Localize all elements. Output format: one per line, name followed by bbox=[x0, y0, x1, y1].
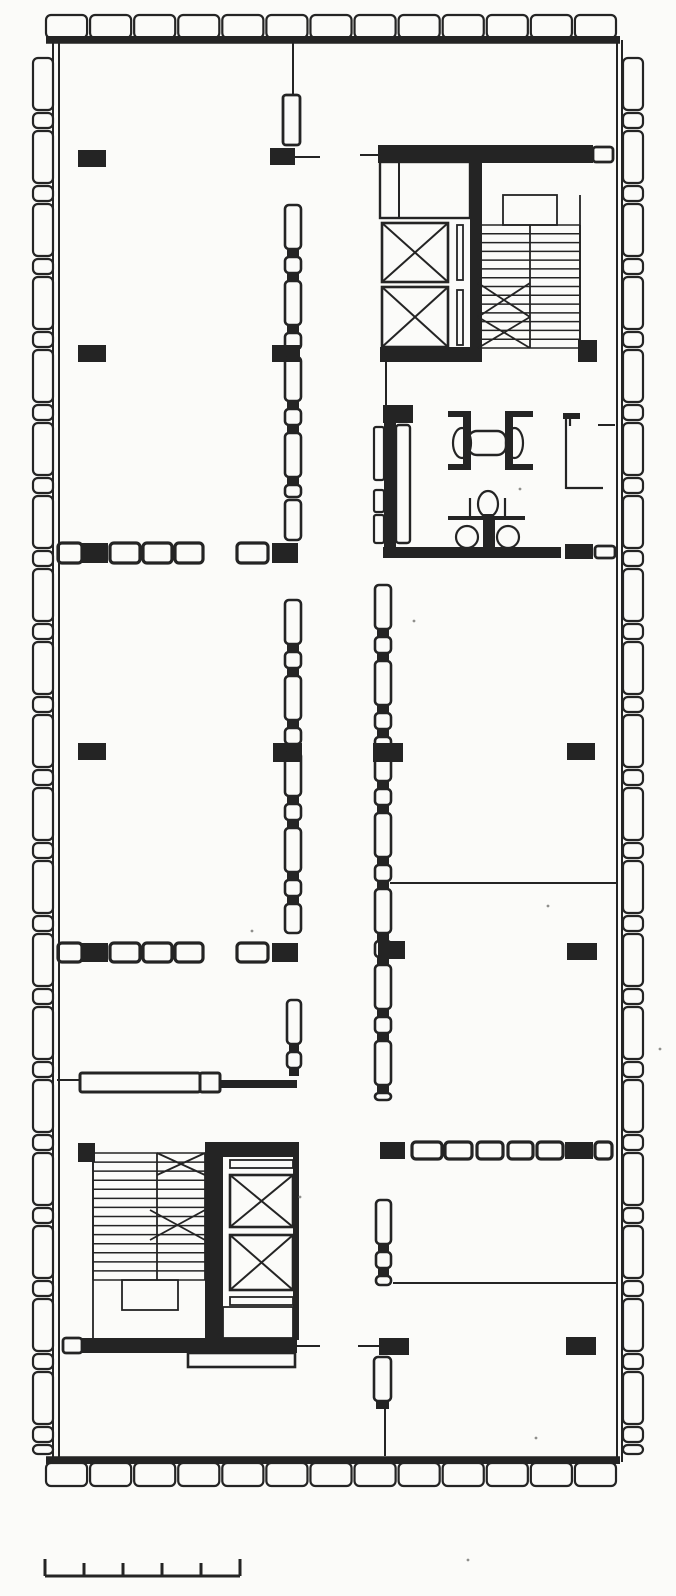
wall-block bbox=[82, 943, 108, 962]
restroom-south-wall bbox=[383, 547, 561, 558]
scan-speck bbox=[659, 1048, 662, 1051]
janitor-room-wall-cap bbox=[563, 413, 580, 419]
core-bottom-wall bbox=[82, 1338, 297, 1353]
scan-speck bbox=[547, 905, 550, 908]
core-top-wall bbox=[378, 145, 593, 163]
column bbox=[383, 405, 413, 423]
scan-speck bbox=[251, 930, 254, 933]
wall-block bbox=[272, 543, 298, 563]
column bbox=[566, 1337, 596, 1355]
column bbox=[78, 150, 106, 167]
column bbox=[270, 148, 295, 165]
wall-block bbox=[82, 543, 108, 563]
tower-west-wall bbox=[205, 1142, 223, 1340]
core-bottom-wall bbox=[380, 347, 478, 362]
core-shear-wall bbox=[470, 163, 482, 362]
column bbox=[567, 743, 595, 760]
floor-plan-drawing bbox=[0, 0, 676, 1596]
restroom-south-wall-block bbox=[565, 544, 593, 559]
wall-block bbox=[272, 943, 298, 962]
sink-counter-bracket bbox=[505, 464, 533, 470]
partition-connector bbox=[376, 1401, 389, 1409]
scan-speck bbox=[519, 488, 522, 491]
scanned-floor-plan-page bbox=[0, 0, 676, 1596]
column bbox=[379, 1338, 409, 1355]
wall-block bbox=[565, 1142, 593, 1159]
scan-speck bbox=[413, 620, 416, 623]
counter-return-wall bbox=[220, 1080, 297, 1088]
top-wall-poche bbox=[46, 36, 620, 43]
column bbox=[78, 743, 106, 760]
scan-speck bbox=[535, 1437, 538, 1440]
tower-top-wall bbox=[210, 1142, 298, 1157]
plumbing-chase-wall bbox=[384, 423, 396, 547]
toilet-partition-rail bbox=[448, 516, 525, 520]
sink-counter-bracket bbox=[448, 464, 470, 470]
column bbox=[567, 943, 597, 960]
wall-block bbox=[380, 1142, 405, 1159]
bottom-wall-poche bbox=[46, 1457, 620, 1464]
partition-connector bbox=[289, 1068, 299, 1076]
scan-speck bbox=[299, 1196, 302, 1199]
column bbox=[78, 345, 106, 362]
scan-speck bbox=[467, 1559, 470, 1562]
column bbox=[373, 743, 403, 762]
paper-background bbox=[0, 0, 676, 1596]
